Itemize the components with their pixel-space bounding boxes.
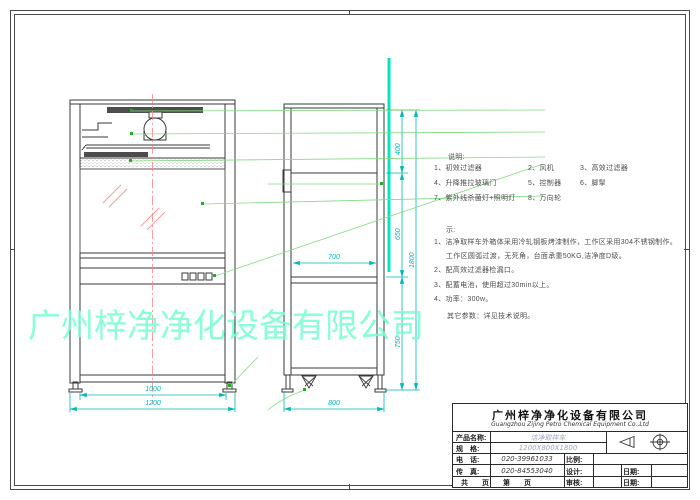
fax-label: 传 真:: [456, 467, 479, 477]
lamp-housing-bar: [84, 152, 148, 157]
fax-value: 020-84553040: [490, 467, 564, 475]
tel-value: 020-39961033: [490, 455, 564, 463]
control-panel-buttons: [182, 273, 212, 280]
dim-height-top-text: 400: [395, 143, 402, 155]
design-label: 设计:: [566, 467, 582, 477]
tel-label: 电 话:: [456, 455, 479, 465]
date-label-1: 日期:: [623, 467, 639, 477]
front-right-post: [225, 104, 235, 383]
side-worktop-band: [291, 277, 377, 283]
title-block-company-en: Guangzhou Zijing Petro Chemical Equipmen…: [453, 421, 687, 428]
side-top-cap: [284, 104, 384, 108]
dim-side-inner-text: 700: [319, 254, 349, 261]
front-left-post: [70, 104, 80, 383]
leader-caster: [268, 390, 305, 410]
spec-label: 规 格:: [456, 444, 479, 454]
front-view: [69, 100, 236, 392]
note-item-8: 8、万向轮: [528, 193, 561, 203]
date-label-2: 日期:: [623, 478, 639, 488]
remark-line-2: 工作区圆弧过渡，无死角，台面承重50KG,洁净度D级。: [446, 251, 626, 261]
side-front-wall: [284, 108, 291, 375]
note-item-2: 2、风机: [528, 163, 554, 173]
audit-label: 审核:: [566, 478, 582, 488]
remark-line-4: 3、配蓄电池，使用超过30min以上。: [434, 280, 554, 290]
dim-front-overall-text: 1200: [130, 400, 176, 407]
shelf-lines: [82, 145, 210, 150]
title-block: 广州梓净净化设备有限公司 Guangzhou Zijing Petro Chem…: [452, 403, 688, 488]
product-name-label: 产品名称:: [456, 433, 486, 443]
dim-height-low-text: 750: [395, 336, 402, 348]
fan-scroll: [144, 118, 166, 140]
dim-height-mid-text: 650: [395, 228, 402, 240]
leader-dots: [129, 109, 383, 391]
notes-heading: 说明:: [448, 152, 465, 162]
spec-value: 1200X800X1800: [490, 444, 606, 452]
drawing-sheet: 1000 1200 700 800 400 650 750 1800 说明: 1…: [0, 0, 700, 500]
note-item-5: 5、控制器: [528, 178, 561, 188]
leader-fan: [132, 132, 545, 134]
leader-foot: [230, 357, 258, 386]
side-back-wall: [377, 108, 384, 375]
glass-hatch-marks: [103, 185, 165, 230]
dim-side-overall-text: 800: [314, 400, 354, 407]
note-item-7: 7、紫外线杀菌灯+照明灯: [434, 193, 516, 203]
scale-label: 比例:: [566, 455, 582, 465]
note-item-3: 3、高效过滤器: [580, 163, 628, 173]
pages-label: 共 页 第 页: [461, 478, 531, 488]
duct-step-line: [82, 123, 112, 130]
remarks-heading: 示:: [446, 225, 456, 235]
note-item-6: 6、脚掣: [580, 178, 606, 188]
remark-line-1: 1、洁净取样车外箱体采用冷轧钢板烤漆制作，工作区采用304不锈钢制作。: [434, 237, 677, 247]
note-item-1: 1、初效过滤器: [434, 163, 482, 173]
dim-front-inner-text: 1000: [130, 386, 176, 393]
product-name-value: 洁净取样车: [490, 433, 606, 443]
note-item-4: 4、升降推拉玻璃门: [434, 178, 497, 188]
side-bottom-rail: [291, 368, 377, 375]
fan-outlet: [149, 112, 162, 118]
remark-line-5: 4、功率：300w。: [434, 294, 493, 304]
projection-symbol: [608, 433, 684, 451]
other-params-note: 其它参数：详见技术说明。: [447, 311, 535, 321]
remark-line-3: 2、配高效过滤器检漏口。: [434, 265, 519, 275]
side-casters: [302, 376, 373, 388]
side-leveling-feet: [282, 375, 386, 392]
dim-height-overall-text: 1800: [409, 252, 416, 268]
